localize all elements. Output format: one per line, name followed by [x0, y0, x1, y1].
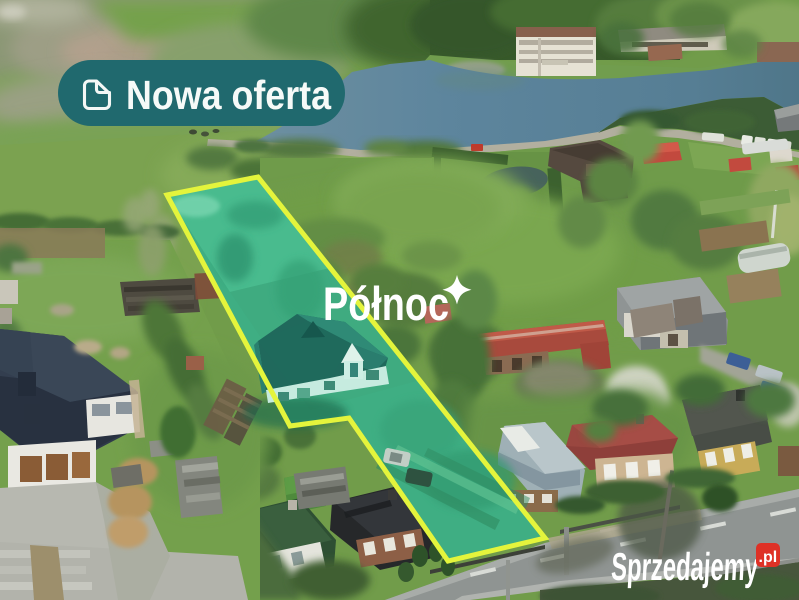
svg-text:.pl: .pl: [759, 549, 778, 566]
svg-text:Nowa oferta: Nowa oferta: [126, 72, 332, 118]
svg-text:Sprzedajemy: Sprzedajemy: [610, 546, 759, 589]
svg-text:Północ: Północ: [323, 277, 449, 330]
